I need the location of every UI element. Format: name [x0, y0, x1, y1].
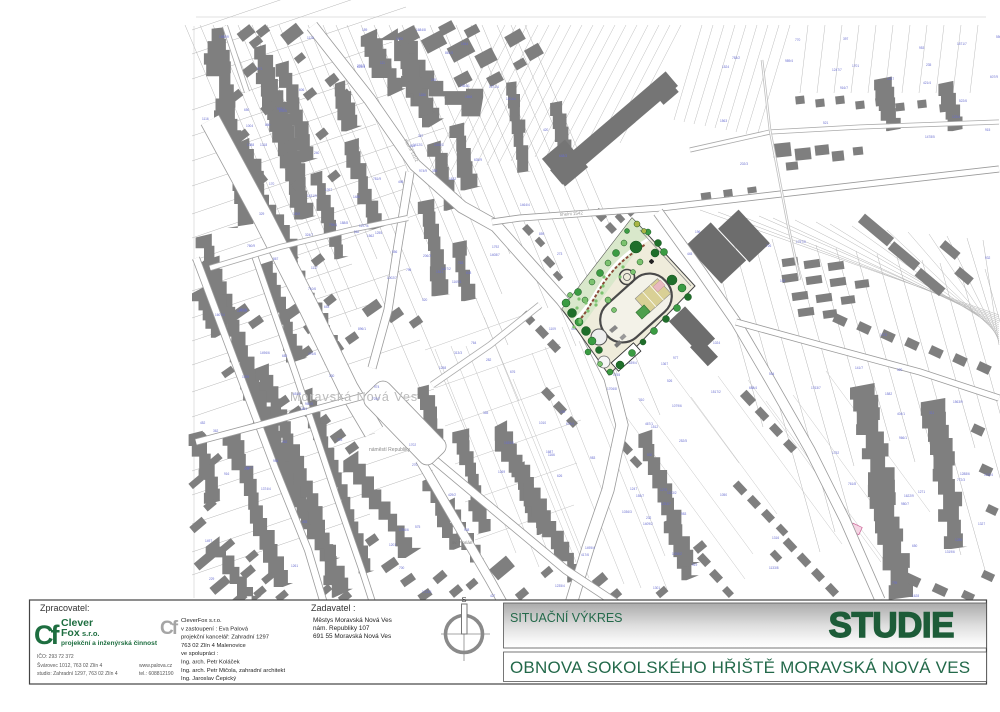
svg-text:projekční a inženýrská činnost: projekční a inženýrská činnost [61, 640, 158, 647]
svg-text:445: 445 [687, 252, 693, 256]
svg-text:1464/4: 1464/4 [520, 203, 530, 207]
svg-text:916/7: 916/7 [840, 86, 848, 90]
svg-text:1563: 1563 [720, 119, 727, 123]
svg-text:207/3: 207/3 [357, 64, 365, 68]
svg-text:1197/4: 1197/4 [359, 224, 369, 228]
svg-text:1191/8: 1191/8 [237, 309, 247, 313]
svg-text:1367: 1367 [661, 362, 668, 366]
svg-text:1702: 1702 [409, 443, 416, 447]
svg-text:229: 229 [209, 577, 215, 581]
svg-text:1571/7: 1571/7 [957, 42, 967, 46]
svg-text:282: 282 [486, 358, 492, 362]
svg-text:245: 245 [431, 78, 437, 82]
svg-text:974: 974 [374, 385, 380, 389]
svg-text:Fox: Fox [61, 627, 80, 639]
svg-text:703: 703 [337, 438, 343, 442]
svg-text:1622/9: 1622/9 [904, 494, 914, 498]
svg-text:1408/7: 1408/7 [490, 253, 500, 257]
svg-text:1261: 1261 [291, 564, 298, 568]
svg-text:476/6: 476/6 [308, 352, 316, 356]
svg-text:Zadavatel :: Zadavatel : [311, 603, 356, 613]
svg-text:676: 676 [510, 370, 516, 374]
svg-text:421/4: 421/4 [923, 81, 931, 85]
svg-text:953: 953 [919, 46, 925, 50]
svg-text:1562: 1562 [367, 234, 374, 238]
svg-text:1304/4: 1304/4 [506, 97, 516, 101]
svg-text:studio: Zahradní 1297, 763 02: studio: Zahradní 1297, 763 02 Zlín 4 [37, 671, 118, 677]
svg-text:náměstí Republiky: náměstí Republiky [369, 447, 411, 453]
svg-text:355: 355 [483, 411, 489, 415]
svg-text:530: 530 [647, 453, 653, 457]
svg-text:608: 608 [466, 271, 472, 275]
svg-text:781/9: 781/9 [373, 177, 381, 181]
svg-text:1635/5: 1635/5 [504, 441, 514, 445]
svg-text:772/3: 772/3 [957, 478, 965, 482]
svg-text:tel.: 608812190: tel.: 608812190 [139, 671, 174, 677]
svg-text:313/3: 313/3 [454, 351, 462, 355]
svg-text:648/3: 648/3 [559, 154, 567, 158]
svg-text:763 02 Zlín 4 Malenovice: 763 02 Zlín 4 Malenovice [181, 643, 246, 649]
svg-text:1632: 1632 [449, 177, 456, 181]
svg-text:1287: 1287 [887, 77, 894, 81]
svg-text:1117: 1117 [311, 266, 318, 270]
svg-text:196: 196 [695, 230, 701, 234]
svg-text:984: 984 [273, 459, 279, 463]
svg-text:Ing. arch. Petr Mičola, zahrad: Ing. arch. Petr Mičola, zahradní archite… [181, 668, 285, 674]
svg-text:235: 235 [926, 63, 932, 67]
svg-text:1286: 1286 [955, 538, 962, 542]
svg-text:1397: 1397 [325, 188, 332, 192]
svg-text:867: 867 [273, 257, 279, 261]
svg-text:1563/9: 1563/9 [953, 400, 963, 404]
svg-text:1235/4: 1235/4 [555, 584, 565, 588]
svg-text:1784/6: 1784/6 [399, 528, 409, 532]
svg-text:760/9: 760/9 [247, 244, 255, 248]
svg-text:635/9: 635/9 [474, 158, 482, 162]
svg-text:1002/7: 1002/7 [387, 276, 397, 280]
svg-text:CleverFox s.r.o.: CleverFox s.r.o. [181, 618, 222, 624]
svg-text:1496/6: 1496/6 [260, 351, 270, 355]
svg-text:1000: 1000 [396, 37, 403, 41]
svg-text:1763: 1763 [880, 333, 887, 337]
svg-text:770: 770 [795, 38, 801, 42]
svg-text:v zastoupení : Eva Palová: v zastoupení : Eva Palová [181, 626, 249, 632]
svg-text:1301: 1301 [653, 586, 660, 590]
svg-text:330: 330 [329, 374, 335, 378]
svg-text:1126: 1126 [307, 36, 314, 40]
svg-text:710/6: 710/6 [308, 287, 316, 291]
svg-text:1247/7: 1247/7 [832, 68, 842, 72]
svg-text:1364/1: 1364/1 [460, 84, 470, 88]
svg-text:1480: 1480 [353, 195, 360, 199]
svg-text:1656: 1656 [465, 95, 472, 99]
svg-text:1500: 1500 [293, 212, 300, 216]
svg-text:726: 726 [766, 244, 772, 248]
svg-text:691 55 Moravská Nová Ves: 691 55 Moravská Nová Ves [313, 633, 391, 640]
svg-text:188/8: 188/8 [340, 221, 348, 225]
svg-text:1723/1: 1723/1 [422, 590, 432, 594]
svg-text:159: 159 [362, 28, 368, 32]
svg-text:202/3: 202/3 [740, 162, 748, 166]
svg-text:1201: 1201 [389, 543, 396, 547]
svg-text:404/1: 404/1 [897, 412, 905, 416]
svg-text:362: 362 [213, 429, 219, 433]
svg-text:240: 240 [314, 151, 320, 155]
svg-text:1004: 1004 [246, 124, 253, 128]
svg-text:799/4: 799/4 [329, 223, 337, 227]
svg-text:270: 270 [412, 463, 418, 467]
svg-text:554: 554 [769, 372, 775, 376]
svg-text:1258: 1258 [439, 366, 446, 370]
svg-text:896/1: 896/1 [358, 327, 366, 331]
svg-text:818: 818 [410, 144, 416, 148]
svg-text:310: 310 [639, 398, 645, 402]
svg-text:761/8: 761/8 [848, 482, 856, 486]
svg-text:483: 483 [302, 520, 308, 524]
svg-text:1681: 1681 [300, 407, 307, 411]
svg-text:projekční kancelář: Zahradní 1: projekční kancelář: Zahradní 1297 [181, 635, 269, 641]
svg-text:206/3: 206/3 [423, 254, 431, 258]
svg-text:725/7: 725/7 [372, 397, 380, 401]
svg-text:OBNOVA SOKOLSKÉHO HŘIŠTĚ MORAV: OBNOVA SOKOLSKÉHO HŘIŠTĚ MORAVSKÁ NOVÁ V… [510, 658, 970, 677]
svg-text:123/4: 123/4 [952, 115, 960, 119]
svg-text:420: 420 [543, 128, 549, 132]
svg-text:1255: 1255 [375, 231, 382, 235]
svg-text:556: 556 [392, 250, 398, 254]
svg-text:STUDIE: STUDIE [829, 606, 954, 645]
svg-text:916: 916 [224, 472, 230, 476]
svg-text:www.palova.cz: www.palova.cz [139, 663, 173, 669]
svg-text:462: 462 [282, 440, 288, 444]
svg-text:607/9: 607/9 [990, 75, 998, 79]
svg-text:311: 311 [929, 411, 934, 415]
svg-text:102: 102 [780, 279, 786, 283]
svg-text:ve spolupráci :: ve spolupráci : [181, 651, 219, 657]
svg-text:1544: 1544 [461, 42, 468, 46]
svg-text:682: 682 [282, 354, 288, 358]
svg-text:sv. Florián: sv. Florián [452, 540, 473, 545]
svg-text:1316: 1316 [772, 536, 779, 540]
svg-text:367: 367 [418, 134, 424, 138]
svg-text:s.r.o.: s.r.o. [82, 629, 100, 638]
svg-text:795: 795 [892, 581, 898, 585]
svg-text:329: 329 [259, 212, 265, 216]
svg-text:1374/4: 1374/4 [261, 487, 271, 491]
svg-text:1497: 1497 [205, 539, 212, 543]
svg-text:232: 232 [646, 516, 652, 520]
svg-text:1079/6: 1079/6 [672, 404, 682, 408]
svg-text:1271: 1271 [918, 490, 925, 494]
svg-text:980/7: 980/7 [901, 502, 909, 506]
svg-text:1541: 1541 [436, 270, 443, 274]
svg-text:1005/2: 1005/2 [672, 552, 682, 556]
svg-text:1431/9: 1431/9 [307, 194, 317, 198]
svg-text:1797/5: 1797/5 [796, 240, 806, 244]
svg-text:520: 520 [897, 368, 903, 372]
svg-text:769/7: 769/7 [245, 466, 253, 470]
svg-text:526: 526 [667, 379, 673, 383]
svg-text:417/6: 417/6 [581, 553, 589, 557]
svg-text:1792: 1792 [492, 245, 499, 249]
svg-text:1752: 1752 [832, 451, 839, 455]
svg-text:679/4: 679/4 [566, 422, 574, 426]
svg-text:1524: 1524 [722, 65, 729, 69]
svg-text:606: 606 [299, 88, 305, 92]
svg-text:427: 427 [490, 594, 496, 598]
svg-text:977: 977 [673, 356, 679, 360]
svg-text:320: 320 [422, 298, 428, 302]
svg-text:Ing. Jaroslav Čepický: Ing. Jaroslav Čepický [181, 675, 236, 682]
svg-text:983: 983 [681, 512, 687, 516]
svg-text:359: 359 [432, 169, 438, 173]
svg-text:1111/4: 1111/4 [984, 473, 993, 477]
svg-text:650: 650 [912, 544, 918, 548]
svg-text:919: 919 [692, 563, 698, 567]
svg-text:1319/6: 1319/6 [945, 550, 955, 554]
svg-text:915: 915 [985, 128, 991, 132]
svg-text:273: 273 [557, 252, 563, 256]
svg-text:1169/1: 1169/1 [452, 280, 462, 284]
svg-text:429/2: 429/2 [448, 493, 456, 497]
svg-text:521: 521 [823, 121, 829, 125]
svg-text:1253/7: 1253/7 [661, 502, 671, 506]
svg-text:1318: 1318 [260, 143, 267, 147]
svg-text:796: 796 [406, 268, 412, 272]
svg-text:1706/8: 1706/8 [607, 387, 617, 391]
svg-text:1684/8: 1684/8 [416, 28, 426, 32]
svg-text:653: 653 [324, 305, 330, 309]
svg-text:170: 170 [269, 182, 275, 186]
svg-text:562: 562 [354, 230, 360, 234]
svg-text:Zpracovatel:: Zpracovatel: [40, 603, 90, 613]
svg-text:575: 575 [415, 525, 421, 529]
svg-text:1588/9: 1588/9 [219, 35, 229, 39]
svg-text:498: 498 [398, 180, 404, 184]
svg-text:Městys Moravská Nová Ves: Městys Moravská Nová Ves [313, 617, 392, 624]
svg-text:1517/2: 1517/2 [711, 390, 721, 394]
svg-text:983: 983 [590, 456, 596, 460]
svg-text:688/4: 688/4 [749, 386, 757, 390]
svg-text:989/4: 989/4 [785, 59, 793, 63]
svg-text:650: 650 [244, 108, 250, 112]
svg-text:1166: 1166 [548, 453, 555, 457]
svg-text:764: 764 [471, 341, 477, 345]
svg-text:974/9: 974/9 [419, 169, 427, 173]
svg-text:966/1: 966/1 [899, 436, 907, 440]
svg-text:SITUAČNÍ VÝKRES: SITUAČNÍ VÝKRES [510, 610, 623, 625]
svg-text:141/7: 141/7 [855, 366, 863, 370]
svg-text:1388: 1388 [247, 143, 254, 147]
svg-text:1010: 1010 [539, 421, 546, 425]
svg-text:252/5: 252/5 [679, 439, 687, 443]
svg-text:Švárovec 1012, 763 02 Zlín 4: Švárovec 1012, 763 02 Zlín 4 [37, 662, 103, 669]
svg-text:1327: 1327 [978, 522, 985, 526]
svg-text:783: 783 [458, 261, 464, 265]
svg-text:1024: 1024 [713, 341, 720, 345]
svg-text:1103/2: 1103/2 [667, 491, 677, 495]
svg-text:IČO: 293 72 372: IČO: 293 72 372 [37, 653, 74, 660]
svg-text:1133/8: 1133/8 [769, 566, 779, 570]
svg-text:1247: 1247 [630, 487, 637, 491]
svg-text:860: 860 [265, 123, 271, 127]
svg-text:1109: 1109 [549, 327, 556, 331]
svg-text:1607/4: 1607/4 [215, 313, 225, 317]
svg-text:895/6: 895/6 [279, 109, 287, 113]
svg-text:1755: 1755 [613, 373, 620, 377]
svg-text:522/6: 522/6 [959, 99, 967, 103]
svg-text:1036/3: 1036/3 [622, 510, 632, 514]
svg-text:1628: 1628 [912, 594, 919, 598]
svg-text:783/2: 783/2 [732, 56, 740, 60]
svg-text:1059: 1059 [242, 375, 249, 379]
svg-text:1571/4: 1571/4 [489, 85, 499, 89]
svg-text:397: 397 [843, 37, 849, 41]
svg-text:550/7: 550/7 [996, 35, 1000, 39]
svg-text:1050: 1050 [720, 493, 727, 497]
svg-text:651/6: 651/6 [293, 392, 301, 396]
svg-text:155/7: 155/7 [636, 494, 644, 498]
svg-text:nám. Republiky 107: nám. Republiky 107 [313, 625, 370, 632]
svg-text:1495/4: 1495/4 [585, 546, 595, 550]
svg-text:700: 700 [399, 566, 405, 570]
svg-text:626: 626 [557, 474, 563, 478]
svg-text:1116: 1116 [202, 117, 209, 121]
svg-text:938: 938 [464, 528, 470, 532]
svg-text:452: 452 [200, 421, 206, 425]
svg-text:111: 111 [380, 61, 385, 65]
svg-text:S: S [462, 595, 467, 604]
svg-text:861/5: 861/5 [445, 51, 453, 55]
svg-text:859: 859 [539, 232, 545, 236]
svg-text:Ing. arch. Petr Koláček: Ing. arch. Petr Koláček [181, 660, 240, 666]
svg-text:1478/5: 1478/5 [925, 135, 935, 139]
svg-text:1188/3: 1188/3 [434, 143, 444, 147]
svg-text:950/5: 950/5 [305, 402, 313, 406]
svg-text:1269: 1269 [498, 470, 505, 474]
svg-text:1409/2: 1409/2 [643, 522, 653, 526]
svg-text:1582: 1582 [885, 392, 892, 396]
svg-text:1701: 1701 [852, 64, 859, 68]
svg-text:971: 971 [257, 67, 263, 71]
svg-text:Cf: Cf [160, 618, 179, 639]
svg-text:259: 259 [560, 410, 566, 414]
svg-text:1288/6: 1288/6 [960, 472, 970, 476]
svg-text:467/1: 467/1 [645, 422, 653, 426]
svg-text:1186: 1186 [419, 93, 426, 97]
svg-text:1763/7: 1763/7 [811, 386, 821, 390]
svg-text:324/7: 324/7 [305, 233, 313, 237]
svg-text:932: 932 [985, 256, 991, 260]
